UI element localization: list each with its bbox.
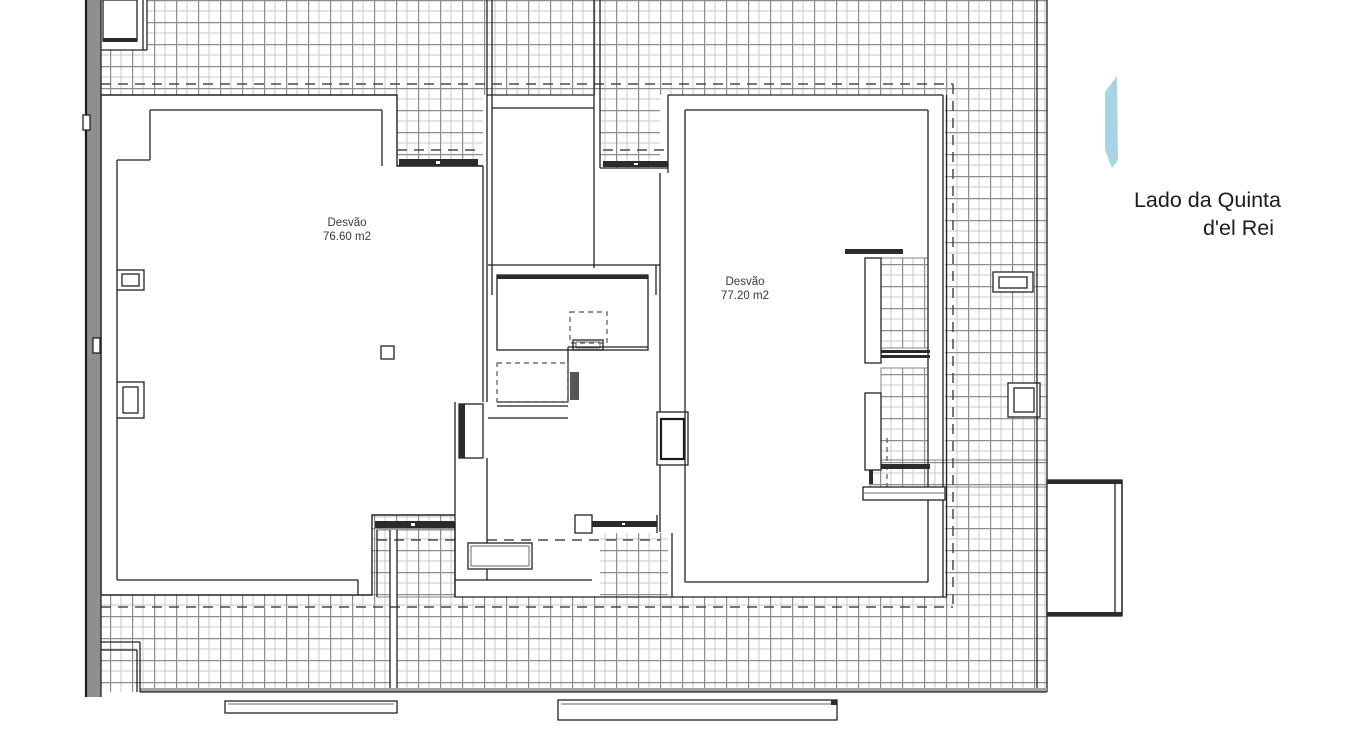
neighbor-wall — [83, 0, 101, 697]
stair-handrail — [570, 372, 579, 400]
wall-pier — [865, 393, 881, 470]
floor-plan-page: Desvão 76.60 m2 Desvão 77.20 m2 Lado da … — [0, 0, 1356, 736]
left-room-area: 76.60 m2 — [323, 231, 371, 243]
eave-step — [225, 701, 397, 713]
left-room-name: Desvão — [328, 217, 367, 229]
eave-step — [558, 700, 837, 720]
right-room-area: 77.20 m2 — [721, 290, 769, 302]
wall-tick — [83, 115, 90, 130]
column — [381, 346, 394, 359]
right-room-name: Desvão — [726, 276, 765, 288]
wall-pier — [117, 270, 144, 290]
top-left-duct — [103, 0, 137, 41]
side-label-line1: Lado da Quinta — [1134, 188, 1281, 212]
side-label-line2: d'el Rei — [1203, 216, 1274, 240]
landing-box — [468, 543, 532, 569]
window-bar — [845, 249, 903, 254]
terrace — [1047, 480, 1122, 616]
side-annotation: Lado da Quinta d'el Rei — [1105, 76, 1281, 240]
floor-plan-drawing: Desvão 76.60 m2 Desvão 77.20 m2 Lado da … — [0, 0, 1356, 736]
wall-pier — [865, 258, 881, 363]
orientation-marker-icon — [1105, 76, 1118, 168]
wall-tick — [93, 338, 100, 353]
